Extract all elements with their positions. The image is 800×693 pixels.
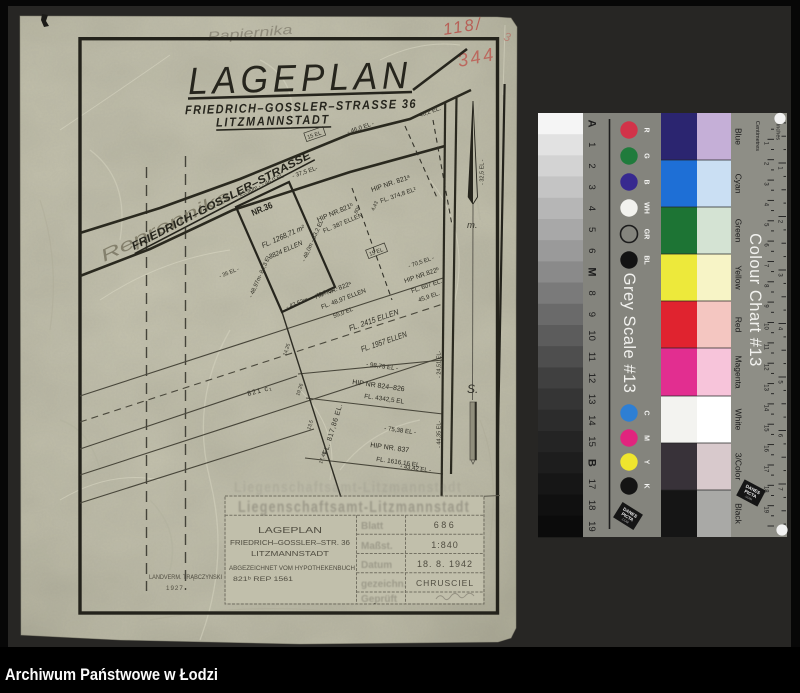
- svg-text:3/Color: 3/Color: [734, 453, 744, 481]
- svg-text:Liegenschaftsamt-Litzmannstadt: Liegenschaftsamt-Litzmannstadt: [234, 479, 462, 496]
- svg-text:R: R: [643, 127, 650, 132]
- svg-text:Magenta: Magenta: [734, 355, 744, 388]
- svg-text:15: 15: [586, 436, 597, 447]
- svg-text:10: 10: [586, 330, 597, 341]
- svg-text:9: 9: [586, 312, 597, 317]
- svg-text:3: 3: [586, 185, 597, 190]
- svg-text:12: 12: [586, 373, 597, 384]
- svg-text:Liegenschaftsamt-Litzmannstadt: Liegenschaftsamt-Litzmannstadt: [238, 499, 470, 516]
- svg-text:18. 8. 1942: 18. 8. 1942: [417, 559, 473, 569]
- svg-text:K: K: [643, 483, 650, 488]
- svg-text:19: 19: [762, 506, 768, 513]
- svg-text:1:840: 1:840: [431, 540, 459, 550]
- svg-text:C: C: [643, 410, 650, 415]
- svg-text:Blue: Blue: [734, 128, 744, 145]
- svg-text:CHRUSCIEL: CHRUSCIEL: [416, 578, 474, 588]
- svg-text:B: B: [586, 459, 598, 467]
- svg-text:19: 19: [586, 521, 597, 532]
- svg-text:M: M: [643, 435, 650, 441]
- svg-text:BL: BL: [643, 255, 650, 265]
- svg-text:15: 15: [762, 425, 768, 432]
- svg-text:ABGEZEICHNET VOM HYPOTHEKENB: ABGEZEICHNET VOM HYPOTHEKENBUCH: [229, 565, 355, 572]
- svg-text:17: 17: [586, 479, 597, 490]
- svg-text:Red: Red: [734, 317, 744, 333]
- svg-text:Grey Scale #13: Grey Scale #13: [620, 273, 638, 394]
- svg-text:Colour Chart #13: Colour Chart #13: [746, 233, 764, 367]
- svg-text:17: 17: [762, 466, 768, 473]
- svg-text:Centimetres: Centimetres: [754, 121, 760, 151]
- svg-text:1: 1: [586, 142, 597, 147]
- svg-text:1927: 1927: [166, 585, 184, 592]
- svg-text:12: 12: [762, 364, 768, 371]
- svg-text:686: 686: [434, 520, 457, 530]
- svg-text:2: 2: [586, 163, 597, 168]
- svg-text:16: 16: [762, 445, 768, 452]
- svg-text:Maßst.: Maßst.: [361, 541, 393, 552]
- svg-text:6: 6: [586, 248, 597, 253]
- svg-text:Archiwum Państwowe w Łodzi: Archiwum Państwowe w Łodzi: [5, 665, 218, 684]
- svg-text:8: 8: [586, 291, 597, 296]
- svg-text:Datum: Datum: [361, 560, 392, 571]
- svg-text:gezeichn.: gezeichn.: [361, 579, 407, 590]
- svg-text:11: 11: [762, 344, 768, 351]
- svg-text:Yellow: Yellow: [734, 265, 744, 290]
- svg-text:Green: Green: [734, 219, 744, 243]
- svg-text:LAGEPLAN: LAGEPLAN: [258, 526, 322, 535]
- svg-text:Y: Y: [643, 460, 650, 465]
- svg-text:14: 14: [586, 415, 597, 426]
- svg-text:LANDVERM. TRĄBCZYNSKI: LANDVERM. TRĄBCZYNSKI: [149, 574, 222, 581]
- svg-text:GR: GR: [643, 229, 650, 240]
- svg-text:Cyan: Cyan: [734, 174, 744, 194]
- svg-text:11: 11: [586, 352, 597, 362]
- svg-text:A: A: [586, 120, 598, 128]
- svg-text:WH: WH: [643, 202, 650, 214]
- svg-text:M: M: [586, 267, 598, 276]
- svg-text:LITZMANNSTADT: LITZMANNSTADT: [251, 549, 330, 558]
- svg-text:m.: m.: [467, 220, 478, 231]
- svg-text:S.: S.: [467, 382, 478, 396]
- svg-text:- 44,35 EL-: - 44,35 EL-: [437, 421, 443, 448]
- svg-text:- 24,51 EL-: - 24,51 EL-: [437, 351, 443, 378]
- svg-text:13: 13: [762, 384, 768, 391]
- svg-text:18: 18: [586, 500, 597, 511]
- svg-text:Inches: Inches: [775, 124, 781, 141]
- svg-text:FRIEDRICH–GOSSLER–STR. 36: FRIEDRICH–GOSSLER–STR. 36: [230, 538, 350, 547]
- svg-text:821ᵇ REP 1561: 821ᵇ REP 1561: [233, 576, 294, 583]
- svg-text:B: B: [643, 179, 650, 184]
- svg-text:5: 5: [586, 227, 597, 232]
- svg-text:Blatt: Blatt: [361, 521, 384, 532]
- svg-text:14: 14: [762, 405, 768, 412]
- svg-text:Geprüft: Geprüft: [361, 594, 398, 605]
- svg-text:13: 13: [586, 394, 597, 405]
- svg-text:White: White: [734, 409, 744, 431]
- svg-text:- 32,5 EL -: - 32,5 EL -: [480, 159, 486, 185]
- svg-text:4: 4: [586, 206, 597, 211]
- svg-text:10: 10: [762, 323, 768, 330]
- svg-text:G: G: [643, 153, 650, 159]
- svg-text:Black: Black: [734, 503, 744, 525]
